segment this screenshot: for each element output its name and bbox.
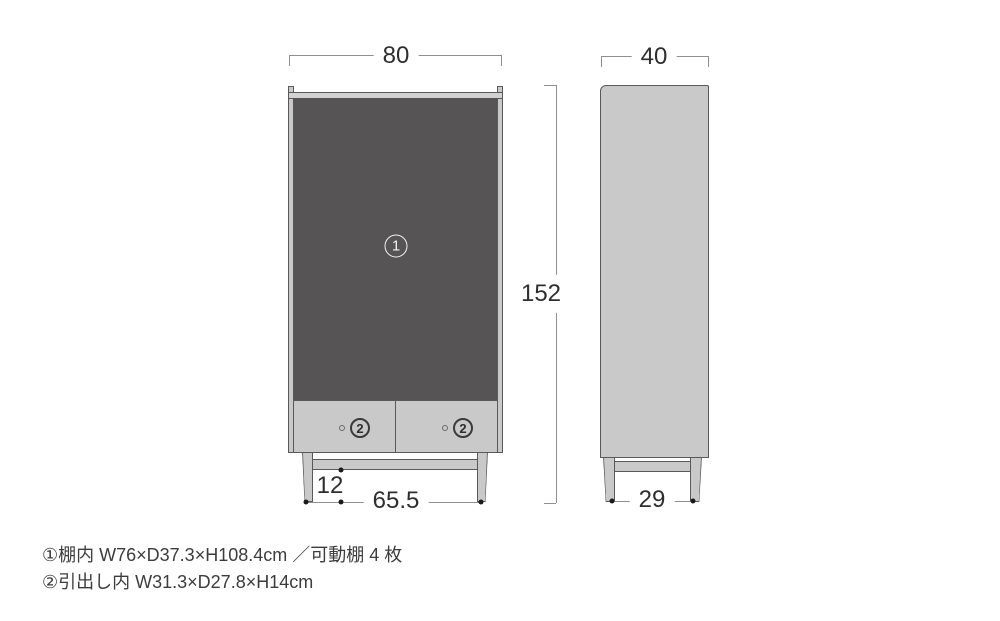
drawer-knob-icon <box>442 425 448 431</box>
side-stretcher-rail <box>609 461 694 472</box>
dimension-tick <box>544 85 556 86</box>
side-back-leg <box>690 457 702 502</box>
dimension-dot <box>479 500 484 505</box>
front-right-leg <box>477 452 488 502</box>
diagram-canvas: 80 1 2 2 152 <box>0 0 1000 621</box>
dimension-tick <box>601 56 602 67</box>
shelf-marker-circle: 1 <box>385 235 408 258</box>
dimension-dot <box>691 499 696 504</box>
drawer-marker-circle: 2 <box>453 418 473 438</box>
dimension-dot <box>339 500 344 505</box>
side-depth-label: 40 <box>632 44 677 70</box>
footnote-drawer-spec: ②引出し内 W31.3×D27.8×H14cm <box>42 569 402 596</box>
drawer-marker-circle: 2 <box>350 418 370 438</box>
drawer-knob-icon <box>339 425 345 431</box>
dimension-tick <box>501 55 502 66</box>
footnotes: ①棚内 W76×D37.3×H108.4cm ／可動棚 4 枚 ②引出し内 W3… <box>42 542 402 596</box>
front-height-label: 152 <box>515 275 567 313</box>
side-leg-span-label: 29 <box>630 487 675 513</box>
dimension-dot <box>304 500 309 505</box>
front-left-leg <box>302 452 313 502</box>
dimension-tick <box>708 56 709 67</box>
footnote-shelf-spec: ①棚内 W76×D37.3×H108.4cm ／可動棚 4 枚 <box>42 542 402 569</box>
side-front-leg <box>603 457 615 502</box>
dimension-tick <box>544 503 556 504</box>
front-stretcher-rail <box>306 459 484 470</box>
dimension-tick <box>289 55 290 66</box>
front-right-post <box>497 86 503 453</box>
front-leg-height-label: 12 <box>315 473 346 499</box>
dimension-dot <box>610 499 615 504</box>
front-leg-span-label: 65.5 <box>364 488 429 514</box>
side-body-panel <box>600 85 709 458</box>
front-width-label: 80 <box>374 43 419 69</box>
